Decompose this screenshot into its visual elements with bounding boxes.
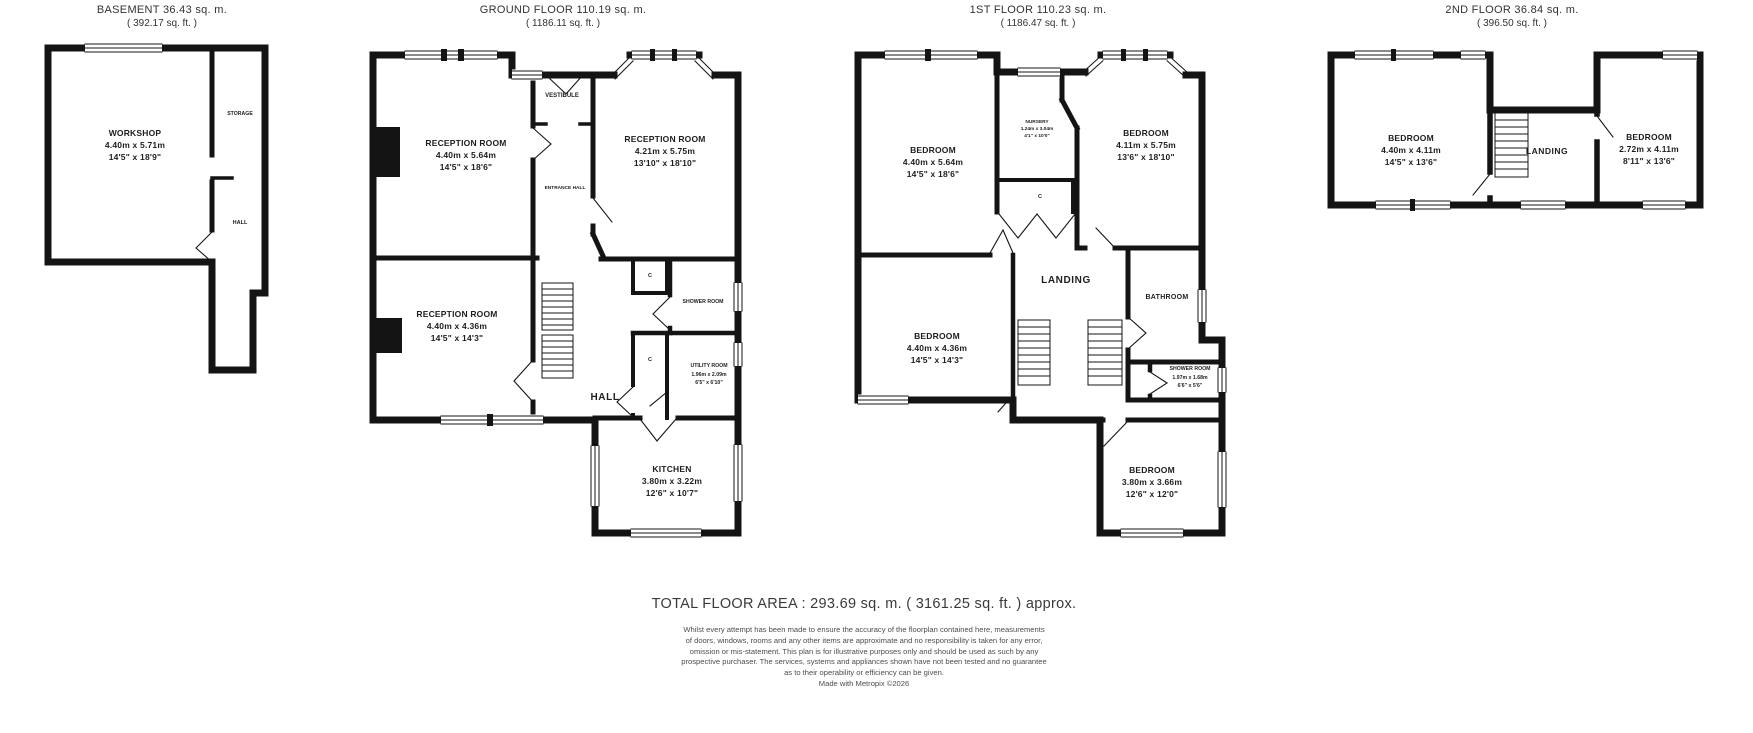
room-dim-imperial: 14'5" x 14'3" — [392, 332, 522, 344]
disclaimer-line: of doors, windows, rooms and any other i… — [514, 636, 1214, 647]
room-name: RECEPTION ROOM — [401, 137, 531, 149]
ground-cupboard2-walls — [633, 333, 667, 418]
floor-subtitle: ( 396.50 sq. ft. ) — [1382, 18, 1642, 29]
room-dim-imperial: 13'6" x 18'10" — [1081, 151, 1211, 163]
room-dim-imperial: 8'11" x 13'6" — [1584, 155, 1714, 167]
room-dim-metric: 4.21m x 5.75m — [600, 145, 730, 157]
room-label-kitchen: KITCHEN 3.80m x 3.22m 12'6" x 10'7" — [607, 463, 737, 499]
room-label-cupboard: C — [1020, 193, 1060, 202]
second-floor-title-block: 2ND FLOOR 36.84 sq. m. ( 396.50 sq. ft. … — [1382, 4, 1642, 29]
room-dim-metric: 4.40m x 4.36m — [392, 320, 522, 332]
room-name: SHOWER ROOM — [1145, 365, 1235, 374]
room-name: BEDROOM — [1584, 131, 1714, 143]
room-label-bedroom3: BEDROOM 4.40m x 4.36m 14'5" x 14'3" — [872, 330, 1002, 366]
room-name: KITCHEN — [607, 463, 737, 475]
room-dim-metric: 1.24m x 3.04m — [992, 126, 1082, 133]
disclaimer-line: Whilst every attempt has been made to en… — [514, 625, 1214, 636]
room-label-utility: UTILITY ROOM 1.96m x 2.09m 6'5" x 6'10" — [664, 362, 754, 388]
room-label-bedroom1: BEDROOM 4.40m x 5.64m 14'5" x 18'6" — [868, 144, 998, 180]
room-label-vestibule: VESTIBULE — [522, 92, 602, 101]
floor-subtitle: ( 392.17 sq. ft. ) — [32, 18, 292, 29]
room-label-ground-hall: HALL — [570, 392, 640, 403]
room-dim-imperial: 6'6" x 5'6" — [1145, 382, 1235, 391]
second-outer-walls — [1331, 55, 1700, 205]
room-label-2nd-bedroom2: BEDROOM 2.72m x 4.11m 8'11" x 13'6" — [1584, 131, 1714, 167]
second-windows — [1355, 49, 1697, 211]
ground-chimney-breast — [376, 127, 400, 177]
floor-title: BASEMENT 36.43 sq. m. — [32, 4, 292, 16]
ground-floor-title-block: GROUND FLOOR 110.19 sq. m. ( 1186.11 sq.… — [433, 4, 693, 29]
room-label-cupboard: C — [630, 356, 670, 365]
room-dim-metric: 2.72m x 4.11m — [1584, 143, 1714, 155]
room-dim-imperial: 13'10" x 18'10" — [600, 157, 730, 169]
room-label-reception1: RECEPTION ROOM 4.40m x 5.64m 14'5" x 18'… — [401, 137, 531, 173]
ground-outer-walls — [373, 55, 738, 533]
room-dim-metric: 4.11m x 5.75m — [1081, 139, 1211, 151]
room-label-bedroom4: BEDROOM 3.80m x 3.66m 12'6" x 12'0" — [1087, 464, 1217, 500]
room-dim-metric: 3.80m x 3.22m — [607, 475, 737, 487]
room-name: RECEPTION ROOM — [392, 308, 522, 320]
floor-title: GROUND FLOOR 110.19 sq. m. — [433, 4, 693, 16]
room-dim-imperial: 14'5" x 14'3" — [872, 354, 1002, 366]
floor-subtitle: ( 1186.11 sq. ft. ) — [433, 18, 693, 29]
room-name: RECEPTION ROOM — [600, 133, 730, 145]
room-dim-imperial: 12'6" x 12'0" — [1087, 488, 1217, 500]
room-name: BEDROOM — [1081, 127, 1211, 139]
room-label-basement-hall: HALL — [200, 219, 280, 228]
room-label-2nd-landing: LANDING — [1497, 146, 1597, 156]
first-floor-title-block: 1ST FLOOR 110.23 sq. m. ( 1186.47 sq. ft… — [908, 4, 1168, 29]
room-name: UTILITY ROOM — [664, 362, 754, 371]
room-name: BEDROOM — [872, 330, 1002, 342]
second-floor-plan — [1331, 49, 1700, 211]
room-name: NURSERY — [992, 119, 1082, 126]
disclaimer-line: as to their operability or efficiency ca… — [514, 668, 1214, 679]
room-dim-imperial: 14'5" x 18'6" — [868, 168, 998, 180]
room-dim-metric: 3.80m x 3.66m — [1087, 476, 1217, 488]
room-dim-imperial: 14'5" x 18'6" — [401, 161, 531, 173]
room-label-cupboard: C — [630, 272, 670, 281]
basement-window — [85, 43, 162, 54]
room-name: BEDROOM — [868, 144, 998, 156]
room-label-storage: STORAGE — [200, 110, 280, 119]
room-dim-metric: 4.40m x 5.71m — [70, 139, 200, 151]
room-label-nursery: NURSERY 1.24m x 3.04m 4'1" x 10'0" — [992, 119, 1082, 140]
ground-stairs — [542, 283, 573, 378]
disclaimer: Whilst every attempt has been made to en… — [514, 625, 1214, 690]
second-stairs — [1495, 113, 1528, 177]
floor-subtitle: ( 1186.47 sq. ft. ) — [908, 18, 1168, 29]
room-label-workshop: WORKSHOP 4.40m x 5.71m 14'5" x 18'9" — [70, 127, 200, 163]
room-label-reception2: RECEPTION ROOM 4.21m x 5.75m 13'10" x 18… — [600, 133, 730, 169]
floor-title: 1ST FLOOR 110.23 sq. m. — [908, 4, 1168, 16]
room-name: BEDROOM — [1346, 132, 1476, 144]
room-label-2nd-bedroom1: BEDROOM 4.40m x 4.11m 14'5" x 13'6" — [1346, 132, 1476, 168]
first-stairs — [1018, 320, 1122, 385]
basement-door-leaf — [196, 232, 212, 262]
room-dim-imperial: 14'5" x 18'9" — [70, 151, 200, 163]
room-dim-imperial: 4'1" x 10'0" — [992, 133, 1082, 140]
room-dim-metric: 4.40m x 5.64m — [401, 149, 531, 161]
room-dim-imperial: 12'6" x 10'7" — [607, 487, 737, 499]
room-dim-metric: 1.96m x 2.09m — [664, 371, 754, 380]
room-label-bathroom: BATHROOM — [1122, 294, 1212, 303]
room-dim-metric: 1.97m x 1.68m — [1145, 374, 1235, 383]
room-dim-metric: 4.40m x 5.64m — [868, 156, 998, 168]
disclaimer-line: omission or mis-statement. This plan is … — [514, 647, 1214, 658]
basement-title-block: BASEMENT 36.43 sq. m. ( 392.17 sq. ft. ) — [32, 4, 292, 29]
room-label-ground-shower: SHOWER ROOM — [663, 298, 743, 307]
room-dim-imperial: 14'5" x 13'6" — [1346, 156, 1476, 168]
room-label-bedroom2: BEDROOM 4.11m x 5.75m 13'6" x 18'10" — [1081, 127, 1211, 163]
room-name: BEDROOM — [1087, 464, 1217, 476]
room-dim-imperial: 6'5" x 6'10" — [664, 379, 754, 388]
room-name: WORKSHOP — [70, 127, 200, 139]
total-floor-area: TOTAL FLOOR AREA : 293.69 sq. m. ( 3161.… — [464, 596, 1264, 612]
room-label-landing: LANDING — [1016, 275, 1116, 286]
room-dim-metric: 4.40m x 4.36m — [872, 342, 1002, 354]
floorplan-page: BASEMENT 36.43 sq. m. ( 392.17 sq. ft. )… — [0, 0, 1753, 733]
metropix-credit: Made with Metropix ©2026 — [514, 679, 1214, 690]
disclaimer-line: prospective purchaser. The services, sys… — [514, 657, 1214, 668]
basement-plan — [48, 43, 265, 371]
room-label-entrance-hall: ENTRANCE HALL — [525, 185, 605, 192]
basement-outer-walls — [48, 48, 265, 370]
room-dim-metric: 4.40m x 4.11m — [1346, 144, 1476, 156]
floor-title: 2ND FLOOR 36.84 sq. m. — [1382, 4, 1642, 16]
room-label-first-shower: SHOWER ROOM 1.97m x 1.68m 6'6" x 5'6" — [1145, 365, 1235, 391]
room-label-reception3: RECEPTION ROOM 4.40m x 4.36m 14'5" x 14'… — [392, 308, 522, 344]
ground-angled-wall — [593, 234, 603, 256]
